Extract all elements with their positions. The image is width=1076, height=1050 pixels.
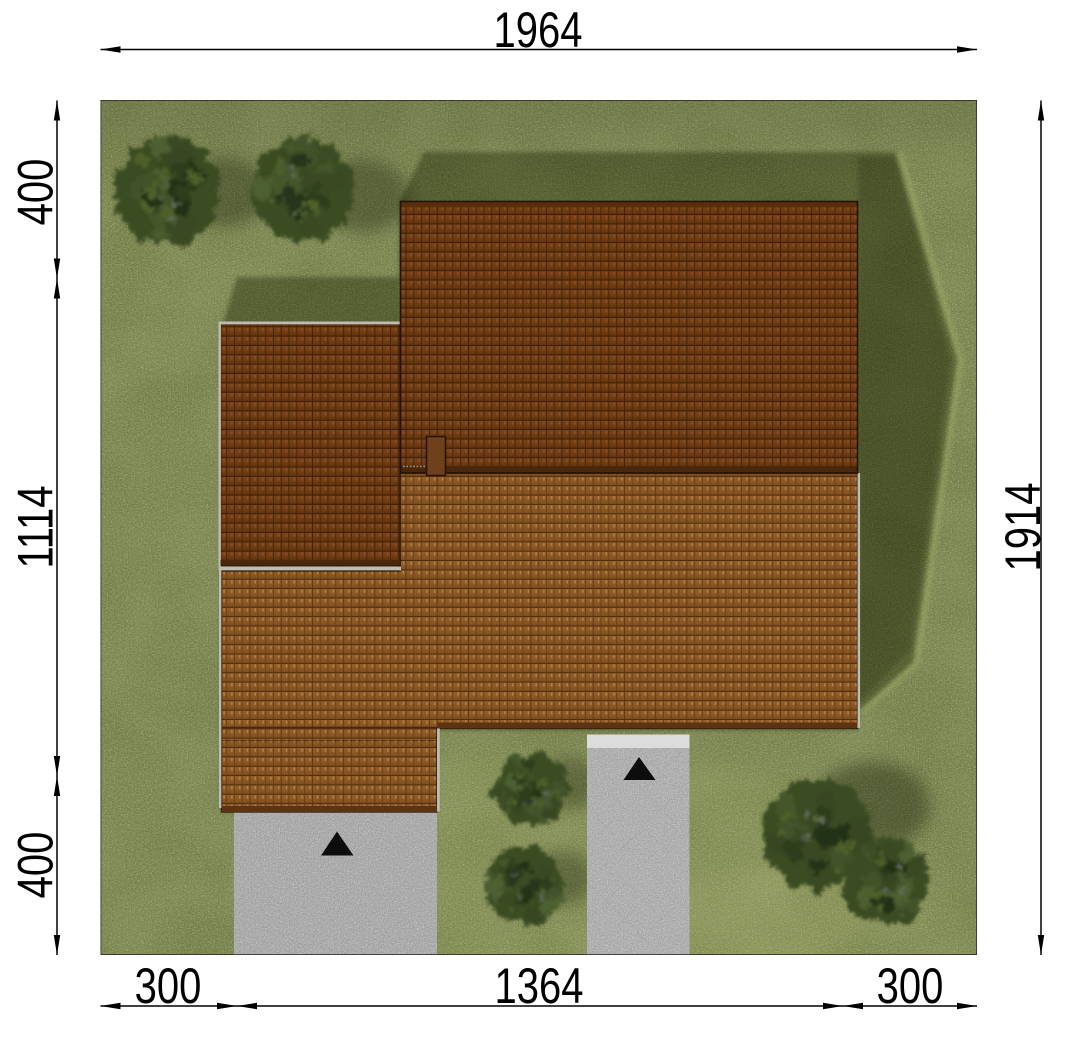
svg-text:1914: 1914 (995, 483, 1051, 572)
svg-text:300: 300 (135, 958, 202, 1014)
svg-text:1114: 1114 (7, 485, 63, 568)
svg-text:1364: 1364 (495, 958, 584, 1014)
svg-text:1964: 1964 (494, 2, 583, 58)
svg-text:300: 300 (877, 958, 944, 1014)
svg-text:400: 400 (7, 159, 63, 226)
svg-text:400: 400 (7, 832, 63, 899)
